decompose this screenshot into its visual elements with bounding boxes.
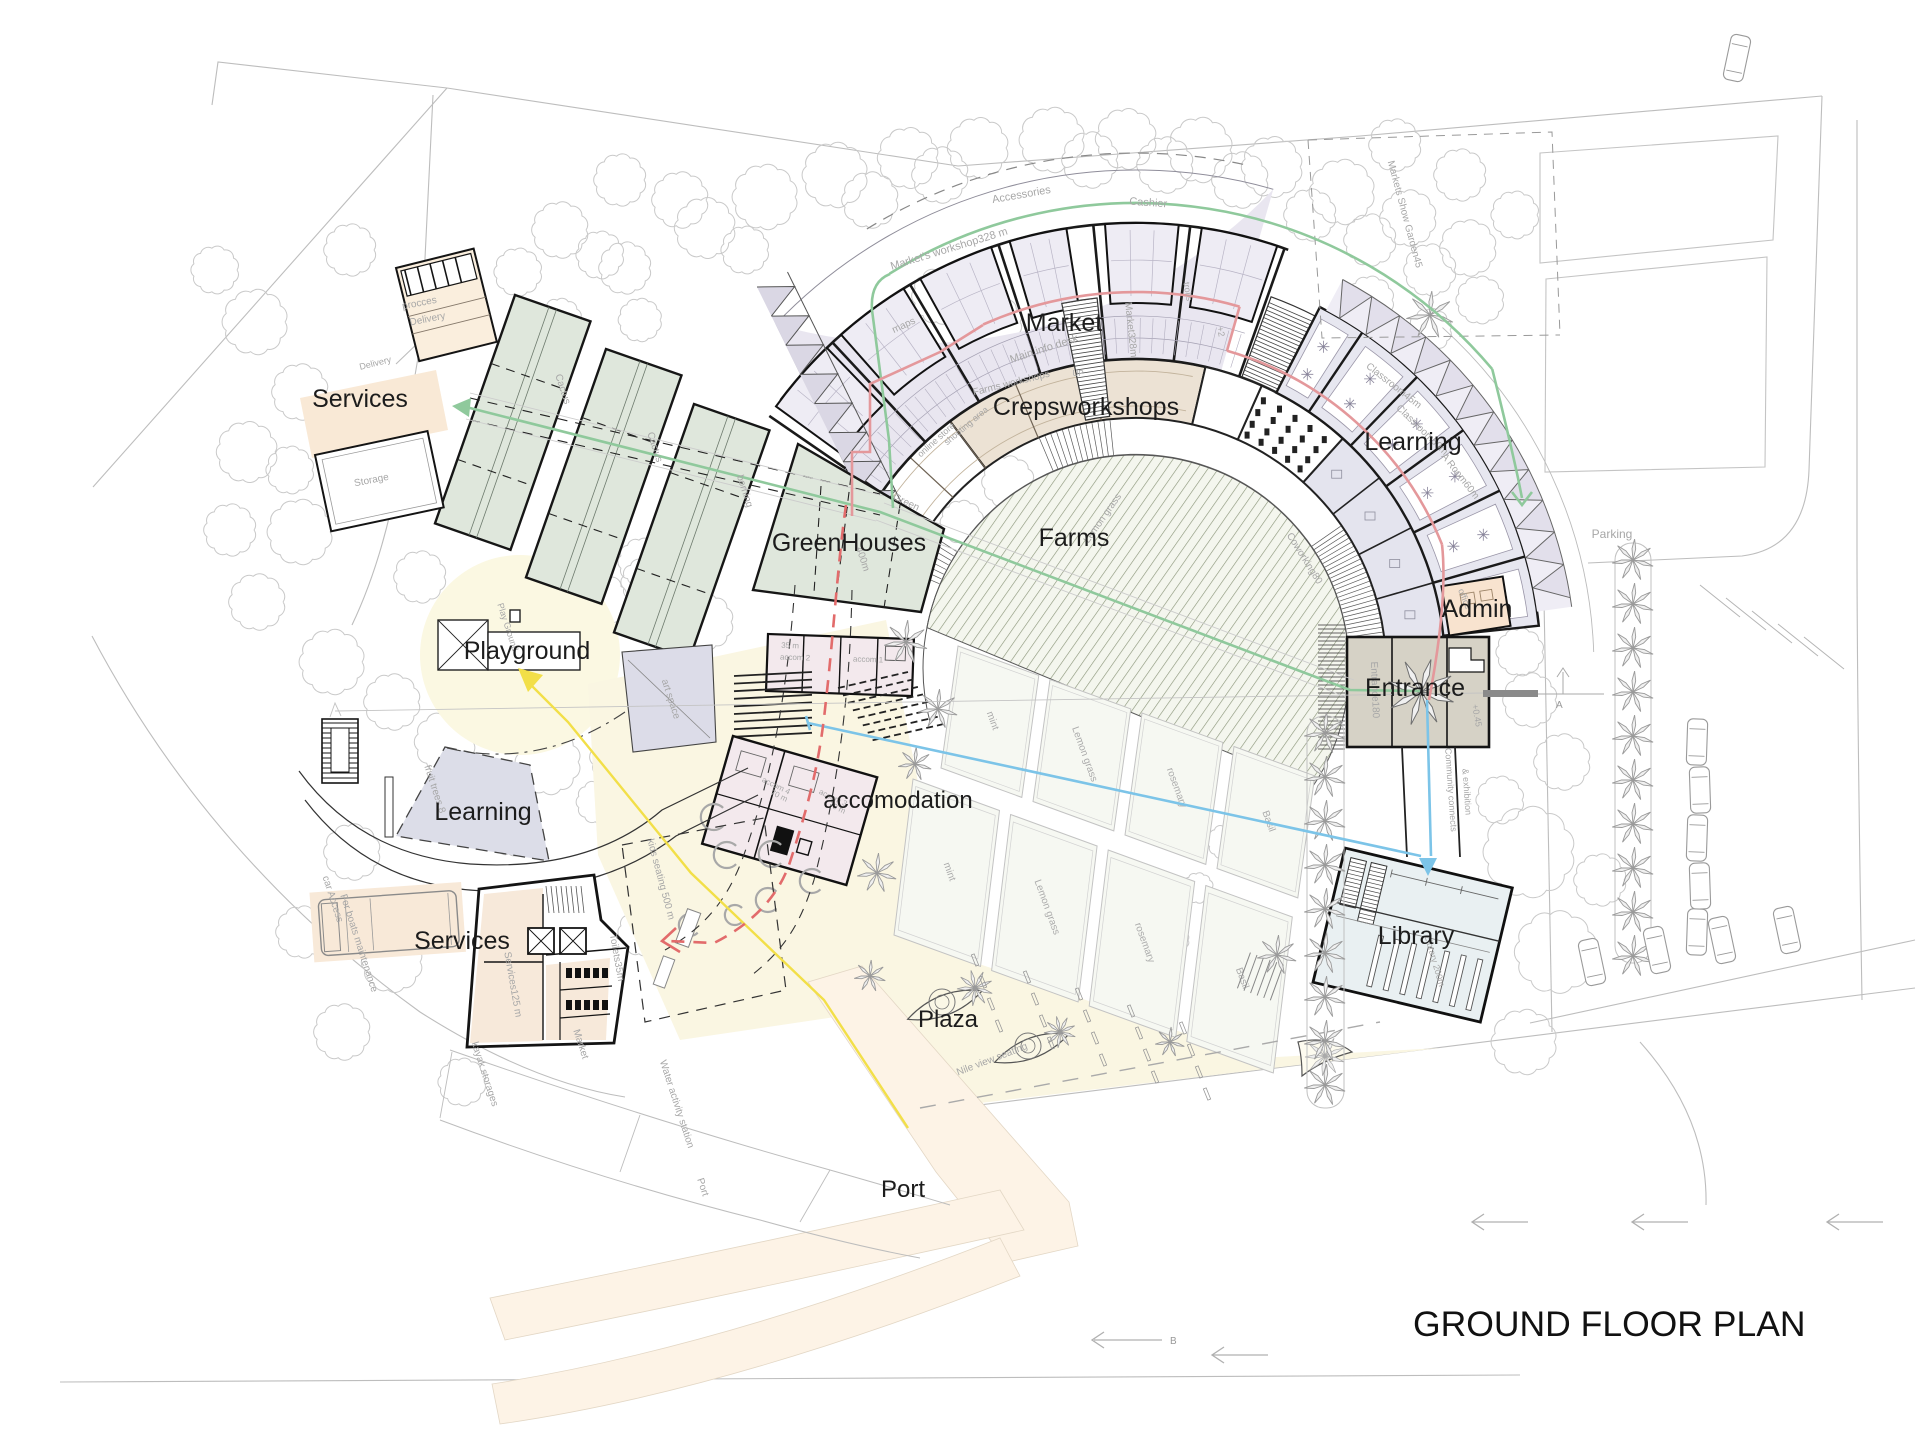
svg-text:Library: Library <box>1378 922 1455 950</box>
svg-text:Services: Services <box>414 927 510 955</box>
svg-text:Market: Market <box>1026 309 1102 337</box>
svg-text:Services: Services <box>312 385 408 413</box>
svg-text:Farms: Farms <box>1039 524 1110 552</box>
svg-text:accom 2: accom 2 <box>780 652 811 662</box>
svg-text:GROUND FLOOR PLAN: GROUND FLOOR PLAN <box>1413 1304 1806 1344</box>
svg-text:Entrance: Entrance <box>1365 674 1465 702</box>
svg-text:A: A <box>1556 700 1563 711</box>
svg-text:Learning: Learning <box>1364 428 1461 456</box>
svg-text:GreenHouses: GreenHouses <box>772 529 926 557</box>
svg-text:35 m: 35 m <box>781 641 799 651</box>
svg-text:Learning: Learning <box>434 798 531 826</box>
svg-text:Plaza: Plaza <box>918 1006 979 1033</box>
svg-text:+2: +2 <box>1215 326 1227 338</box>
svg-text:Crepsworkshops: Crepsworkshops <box>993 393 1179 421</box>
svg-text:Admin: Admin <box>1442 595 1513 623</box>
svg-text:Playground: Playground <box>464 637 590 665</box>
svg-text:Parking: Parking <box>1592 527 1633 541</box>
svg-text:Port: Port <box>881 1176 925 1203</box>
svg-text:UP: UP <box>1072 369 1083 378</box>
svg-text:accom 1: accom 1 <box>853 654 884 664</box>
svg-text:accomodation: accomodation <box>823 787 972 814</box>
svg-text:B: B <box>1170 1336 1177 1347</box>
